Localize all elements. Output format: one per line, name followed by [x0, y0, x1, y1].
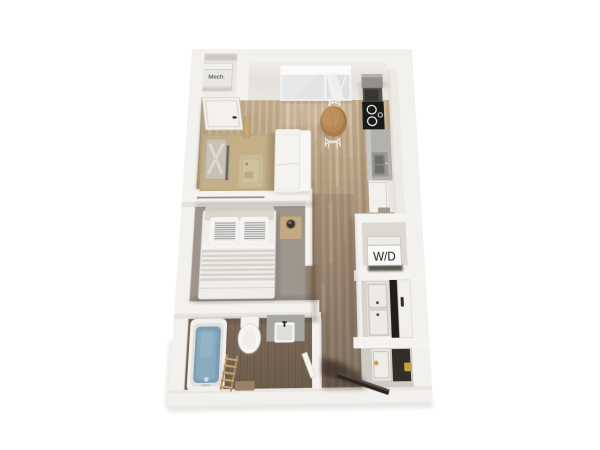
svg-text:Mech.: Mech.: [208, 75, 225, 81]
svg-text:W/D: W/D: [373, 251, 396, 264]
